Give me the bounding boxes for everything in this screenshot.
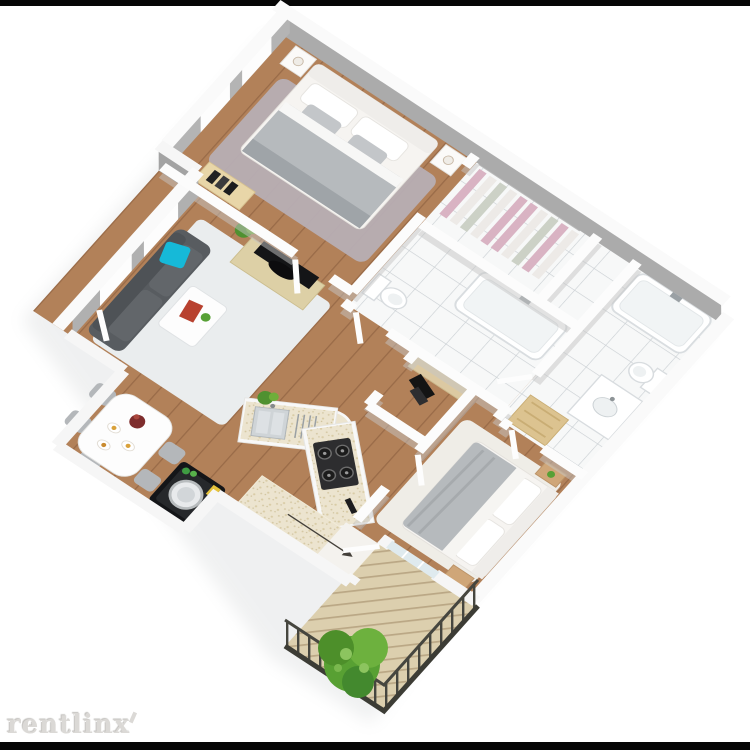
watermark-logo: rentlinx xyxy=(7,710,135,740)
bottom-black-bar xyxy=(0,742,750,750)
floor-plan-render xyxy=(0,0,750,750)
floor-plan-scene: rentlinx xyxy=(0,0,750,750)
apartment xyxy=(0,1,746,712)
watermark-text: rentlinx xyxy=(7,710,130,740)
kitchen-sink xyxy=(251,407,289,440)
